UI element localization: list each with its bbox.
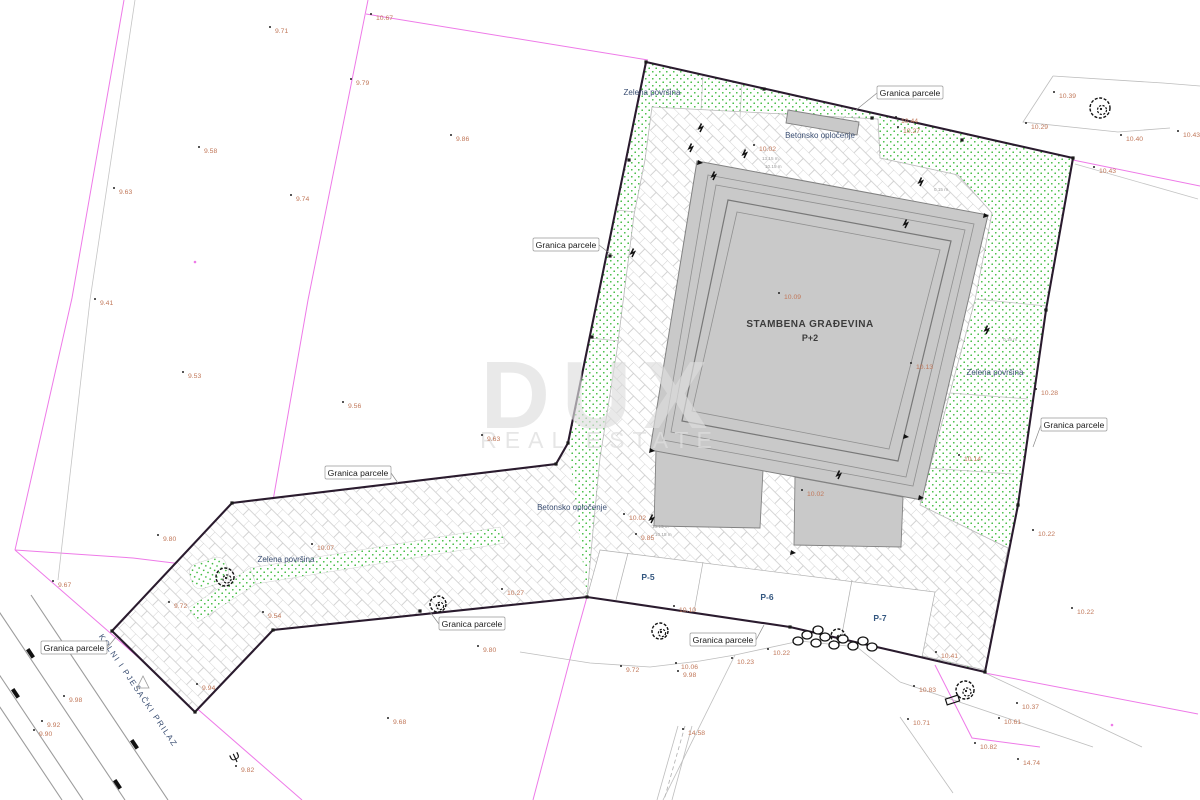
spot-height-dot [63, 695, 65, 697]
tree-icon [1090, 98, 1110, 118]
spot-height-dot [897, 126, 899, 128]
tree-icon [652, 623, 668, 639]
elevation-label: 10.13 [916, 364, 933, 371]
spot-height-dot [1053, 91, 1055, 93]
spot-height-dot [1120, 134, 1122, 136]
parcel-lower-paving [112, 443, 587, 712]
elevation-label: 10.82 [980, 744, 997, 751]
spot-height-dot [1025, 122, 1027, 124]
elevation-label: 10.29 [1031, 124, 1048, 131]
spot-height-dot [1071, 607, 1073, 609]
elevation-label: 10.09 [784, 294, 801, 301]
site-plan: DUX REAL ESTATE STAMBENA GRAĐEVINA P+2 K… [0, 0, 1200, 800]
survey-tick [590, 335, 593, 338]
parking-label: P-5 [641, 572, 655, 582]
spot-height-dot [387, 717, 389, 719]
spot-height-dot [1017, 758, 1019, 760]
survey-line [985, 673, 1142, 747]
spot-height-dot [269, 26, 271, 28]
elevation-label: 14.74 [1023, 760, 1040, 767]
spot-height-dot [1032, 529, 1034, 531]
granica-parcele-label: Granica parcele [442, 619, 503, 629]
survey-tick [193, 710, 196, 713]
survey-line [1053, 76, 1200, 86]
spot-height-dot [753, 144, 755, 146]
note-label: 0.15 m [1003, 337, 1017, 342]
spot-height-dot [767, 648, 769, 650]
elevation-label: 10.61 [1004, 719, 1021, 726]
granica-parcele-label: Granica parcele [693, 635, 754, 645]
survey-tick [585, 595, 588, 598]
elevation-label: 9.67 [58, 582, 71, 589]
elevation-label: 9.90 [39, 731, 52, 738]
elevation-label: 10.27 [903, 128, 920, 135]
cadastral-line [366, 14, 648, 60]
spot-height-dot [998, 717, 1000, 719]
lamp-icon: Ψ [227, 749, 243, 767]
shrub-icon [813, 626, 823, 634]
elevation-label: 9.79 [356, 80, 369, 87]
spot-height-dot [620, 665, 622, 667]
spot-height-dot [501, 588, 503, 590]
label-leader [391, 473, 398, 483]
elevation-label: 10.44 [901, 118, 918, 125]
spot-height-dot [974, 742, 976, 744]
spot-height-dot [673, 605, 675, 607]
granica-parcele-label: Granica parcele [536, 240, 597, 250]
elevation-label: 9.41 [100, 300, 113, 307]
spot-height-dot [198, 146, 200, 148]
survey-tick [983, 670, 986, 673]
spot-height-dot [1035, 388, 1037, 390]
elevation-label: 9.56 [348, 403, 361, 410]
label-leader [1033, 425, 1041, 447]
zelena-povrsina-label: Zelena površina [624, 88, 681, 97]
survey-line [58, 0, 135, 580]
spot-height-dot [1016, 702, 1018, 704]
spot-height-dot [450, 134, 452, 136]
spot-height-dot [196, 683, 198, 685]
survey-line [663, 655, 735, 800]
spot-height-dot [801, 489, 803, 491]
label-leader [756, 625, 764, 640]
note-label: 10.15 m [765, 164, 782, 169]
spot-height-dot [52, 580, 54, 582]
spot-height-dot [1093, 166, 1095, 168]
zelena-povrsina-label: Zelena površina [258, 555, 315, 564]
spot-height-dot [682, 728, 684, 730]
elevation-label: 10.39 [1059, 93, 1076, 100]
elevation-label: 10.22 [1038, 531, 1055, 538]
shrub-icon [848, 642, 858, 650]
spot-height-dot [477, 645, 479, 647]
spot-height-dot [675, 662, 677, 664]
elevation-label: 9.98 [69, 697, 82, 704]
elevation-label: 10.41 [941, 653, 958, 660]
note-label: 0.15 m [934, 187, 948, 192]
spot-height-dot [623, 513, 625, 515]
elevation-label: 9.72 [174, 603, 187, 610]
spot-height-dot [958, 454, 960, 456]
survey-tick [566, 441, 569, 444]
spot-height-dot [677, 670, 679, 672]
spot-height-dot [182, 371, 184, 373]
elevation-label: 9.92 [47, 722, 60, 729]
elevation-label: 10.14 [964, 456, 981, 463]
elevation-label: 9.54 [268, 613, 281, 620]
elevation-label: 9.63 [119, 189, 132, 196]
spot-height-dot [635, 533, 637, 535]
elevation-label: 10.28 [1041, 390, 1058, 397]
elevation-label: 10.22 [1077, 609, 1094, 616]
note-label: 13.15 m [652, 524, 669, 529]
elevation-label: 9.94 [202, 685, 215, 692]
elevation-label: 10.43 [1183, 132, 1200, 139]
spot-height-dot [262, 611, 264, 613]
elevation-label: 10.06 [681, 664, 698, 671]
spot-height-dot [311, 543, 313, 545]
contour-line [520, 641, 900, 682]
elevation-label: 10.43 [1099, 168, 1116, 175]
elevation-label: 10.02 [807, 491, 824, 498]
magenta-dot [194, 261, 197, 264]
note-label: 13.15 m [762, 156, 779, 161]
survey-tick [554, 462, 557, 465]
shrub-icon [867, 643, 877, 651]
spot-height-dot [913, 685, 915, 687]
note-label: 10.15 m [655, 532, 672, 537]
survey-tick [110, 629, 113, 632]
shrub-icon [858, 637, 868, 645]
spot-height-dot [481, 434, 483, 436]
elevation-label: 10.23 [737, 659, 754, 666]
elevation-label: 9.58 [204, 148, 217, 155]
elevation-label: 10.40 [1126, 136, 1143, 143]
survey-tick [1016, 503, 1019, 506]
survey-tick [870, 116, 873, 119]
survey-tick [788, 625, 791, 628]
shrub-icon [802, 631, 812, 639]
elevation-label: 9.53 [188, 373, 201, 380]
elevation-label: 9.86 [456, 136, 469, 143]
survey-tick [271, 628, 274, 631]
elevation-label: 10.22 [773, 650, 790, 657]
spot-height-dot [778, 292, 780, 294]
elevation-label: 9.71 [275, 28, 288, 35]
elevation-label: 14.58 [688, 730, 705, 737]
elevation-label: 9.85 [641, 535, 654, 542]
granica-parcele-label: Granica parcele [44, 643, 105, 653]
shrub-icon [793, 637, 803, 645]
betonsko-oplocenje-label: Betonsko opločenje [537, 503, 607, 512]
spot-height-dot [157, 534, 159, 536]
shrub-icon [820, 633, 830, 641]
elevation-label: 10.37 [1022, 704, 1039, 711]
elevation-label: 10.27 [507, 590, 524, 597]
elevation-label: 9.98 [683, 672, 696, 679]
parking-label: P-6 [760, 592, 774, 602]
elevation-label: 10.67 [376, 15, 393, 22]
cadastral-line [1073, 160, 1200, 186]
cadastral-line [533, 597, 587, 800]
spot-height-dot [342, 401, 344, 403]
elevation-label: 10.02 [629, 515, 646, 522]
elevation-label: 9.68 [393, 719, 406, 726]
elevation-label: 9.80 [163, 536, 176, 543]
label-leader [856, 93, 877, 110]
building-title: STAMBENA GRAĐEVINA [746, 319, 873, 330]
elevation-label: 9.63 [487, 436, 500, 443]
spot-height-dot [895, 116, 897, 118]
granica-parcele-label: Granica parcele [1044, 420, 1105, 430]
spot-height-dot [907, 718, 909, 720]
elevation-label: 10.71 [913, 720, 930, 727]
elevation-label: 9.72 [626, 667, 639, 674]
parking-label: P-7 [873, 613, 887, 623]
elevation-label: 9.74 [296, 196, 309, 203]
betonsko-oplocenje-label: Betonsko opločenje [785, 131, 855, 140]
survey-tick [418, 609, 421, 612]
building-floors: P+2 [802, 333, 818, 343]
survey-tick [762, 87, 765, 90]
elevation-label: 10.10 [679, 607, 696, 614]
spot-height-dot [910, 362, 912, 364]
spot-height-dot [350, 78, 352, 80]
survey-tick [1044, 308, 1047, 311]
spot-height-dot [1177, 130, 1179, 132]
survey-tick [230, 501, 233, 504]
survey-line [900, 717, 953, 793]
road-line [0, 595, 62, 800]
granica-parcele-label: Granica parcele [880, 88, 941, 98]
cadastral-line [15, 0, 124, 550]
survey-tick [627, 158, 630, 161]
shrub-icon [829, 641, 839, 649]
survey-tick [644, 60, 647, 63]
elevation-label: 10.07 [317, 545, 334, 552]
shrub-icon [811, 639, 821, 647]
spot-height-dot [41, 720, 43, 722]
watermark-realestate: REAL ESTATE [480, 427, 720, 453]
elevation-label: 9.82 [241, 767, 254, 774]
spot-height-dot [94, 298, 96, 300]
spot-height-dot [168, 601, 170, 603]
elevation-label: 10.83 [919, 687, 936, 694]
spot-height-dot [33, 729, 35, 731]
survey-tick [960, 138, 963, 141]
shrub-icon [838, 635, 848, 643]
spot-height-dot [113, 187, 115, 189]
spot-height-dot [370, 13, 372, 15]
magenta-dot [1111, 724, 1114, 727]
zelena-povrsina-label: Zelena površina [967, 368, 1024, 377]
spot-height-dot [290, 194, 292, 196]
survey-tick [1071, 156, 1074, 159]
spot-height-dot [731, 657, 733, 659]
spot-height-dot [935, 651, 937, 653]
cadastral-line [985, 673, 1198, 714]
elevation-label: 9.80 [483, 647, 496, 654]
elevation-label: 10.02 [759, 146, 776, 153]
granica-parcele-label: Granica parcele [328, 468, 389, 478]
